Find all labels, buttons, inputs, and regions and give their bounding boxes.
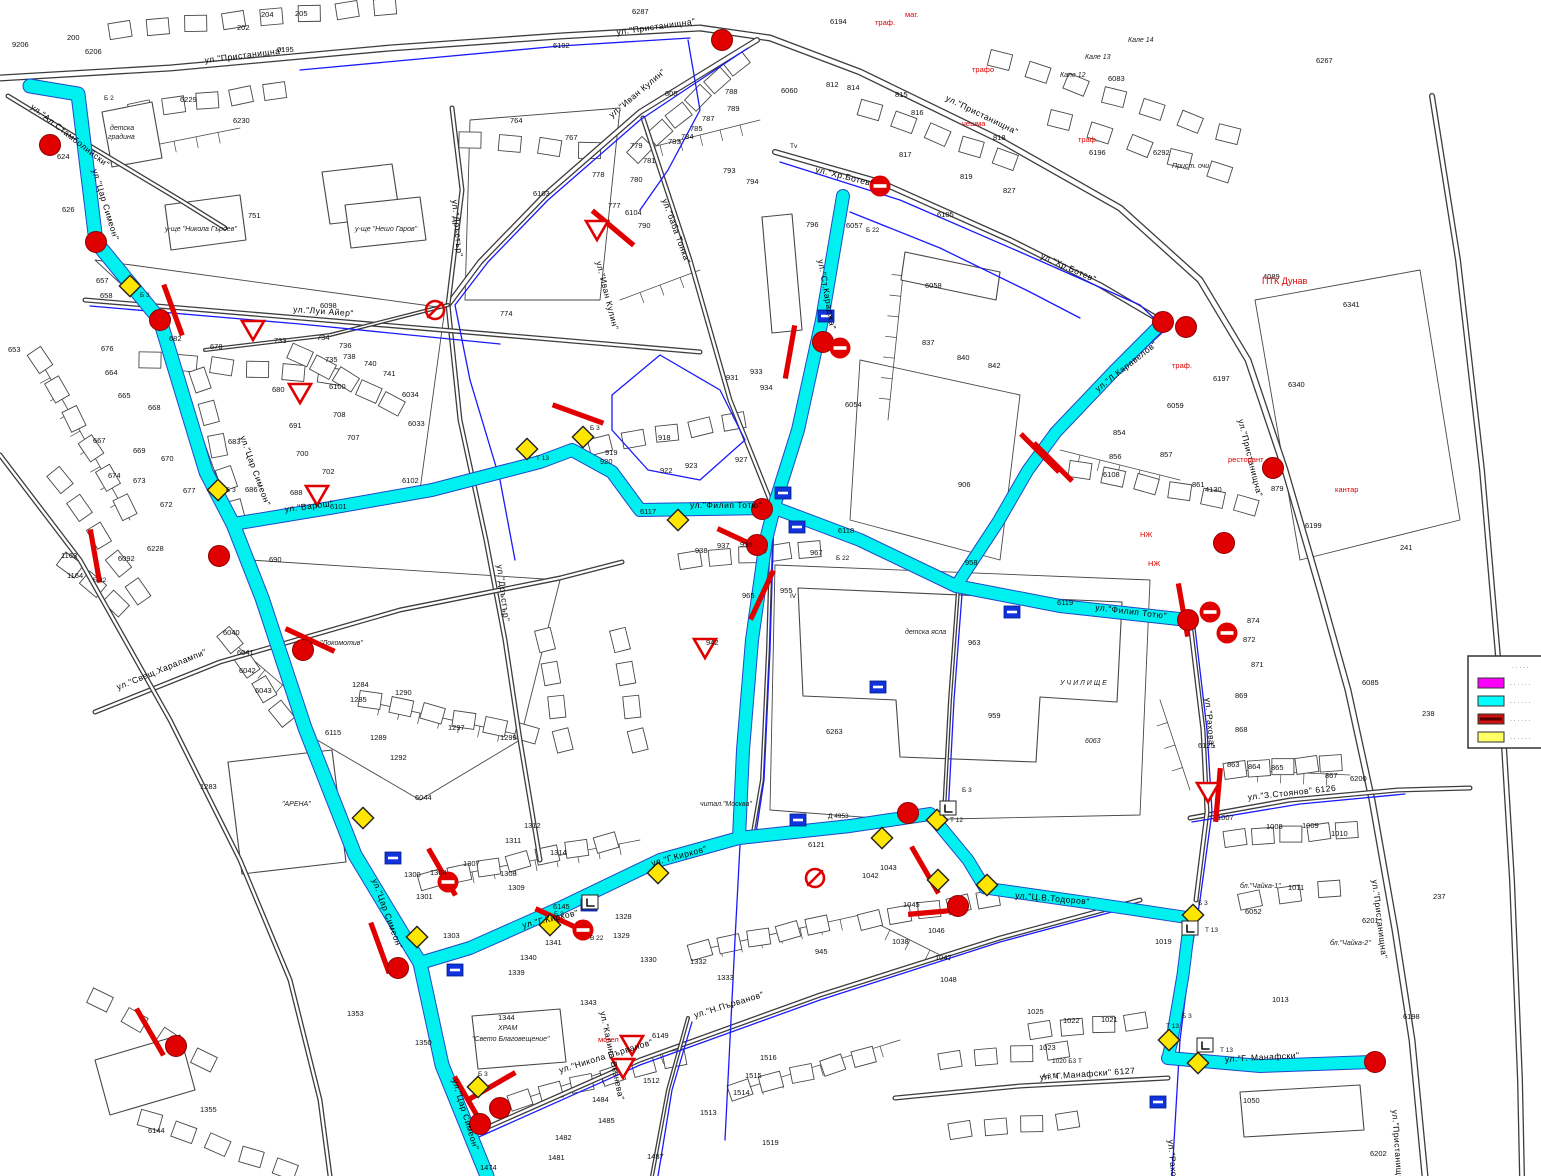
building-outline <box>1102 87 1127 108</box>
legend-swatch <box>1478 678 1504 688</box>
parcel-number: 857 <box>1160 450 1173 459</box>
building-outline <box>204 1133 231 1157</box>
parcel-division <box>196 137 198 148</box>
building-outline <box>139 352 161 368</box>
info-plate-sign <box>1197 1038 1213 1052</box>
sign-code-label: Т 13 <box>1205 927 1218 934</box>
parcel-number: 6083 <box>1108 74 1125 83</box>
parcel-number: 6085 <box>1362 678 1379 687</box>
sign-code-label: Б 3 <box>140 292 150 299</box>
parcel-number: 1010 <box>1331 829 1348 838</box>
parcel-division <box>619 844 621 855</box>
parcel-number: 6197 <box>1213 374 1230 383</box>
poi-label: Кале 14 <box>1128 37 1154 44</box>
parcel-number: 863 <box>1227 760 1240 769</box>
info-plate-sign <box>582 895 598 909</box>
legend-swatch <box>1478 696 1504 706</box>
building-outline <box>198 400 219 425</box>
building-outline <box>1234 495 1260 516</box>
parcel-number: 9206 <box>12 40 29 49</box>
sign-code-label: 1020 Б3 Т <box>1052 1058 1082 1065</box>
parcel-number: 816 <box>911 108 924 117</box>
building-outline <box>552 728 573 753</box>
hydrant-plate-bar <box>873 686 883 689</box>
sign-code-label: В 22 <box>590 935 604 942</box>
parcel-number: 6340 <box>1288 380 1305 389</box>
hydrant-marker <box>1178 610 1199 631</box>
building-outline <box>373 0 396 16</box>
building-outline <box>610 627 631 652</box>
building-outline <box>108 20 132 39</box>
building-outline <box>541 661 561 685</box>
parcel-number: 1038 <box>892 937 909 946</box>
legend-item-label: · · · · · · <box>1510 700 1530 706</box>
building-outline <box>789 1063 814 1083</box>
parcel-number: 958 <box>965 558 978 567</box>
parcel-number: 241 <box>1400 543 1413 552</box>
road-surface <box>470 900 1140 1135</box>
street-name-label: ул."Н.Първанов" <box>693 989 765 1020</box>
parcel-number: 959 <box>988 711 1001 720</box>
building-outline <box>239 1146 265 1167</box>
utility-poi-label: траф. <box>1078 135 1098 144</box>
parcel-division <box>888 316 899 317</box>
parcel-number: 6040 <box>223 628 240 637</box>
parcel-number: 658 <box>100 291 113 300</box>
parcel-division <box>883 357 894 358</box>
building-outline <box>805 915 830 935</box>
parcel-number: 1297 <box>448 723 465 732</box>
building-outline <box>857 910 882 931</box>
parcel-number: 6058 <box>925 281 942 290</box>
parcel-number: 6052 <box>1245 907 1262 916</box>
parcel-number: 1283 <box>200 782 217 791</box>
parcel-number: 1299 <box>500 733 517 742</box>
poi-label: бл."Чайка-2" <box>1330 939 1371 947</box>
parcel-number: 6192 <box>553 41 570 50</box>
hydrant-marker <box>150 310 171 331</box>
sign-code-label: Б 3 <box>226 487 236 494</box>
building-outline <box>1318 880 1341 897</box>
parcel-number: 942 <box>706 638 719 647</box>
building-outline <box>548 695 566 719</box>
parcel-number: 1330 <box>640 955 657 964</box>
building-outline <box>185 15 207 31</box>
parcel-number: 669 <box>133 446 146 455</box>
sign-code-label: Б 22 <box>93 577 107 584</box>
parcel-number: 667 <box>93 436 106 445</box>
parcel-number: 1021 <box>1101 1015 1118 1024</box>
valve-diamond-marker <box>467 1076 488 1097</box>
utility-poi-label: мотел <box>598 1035 619 1044</box>
parcel-number: 1308 <box>500 869 517 878</box>
parcel-number: 1008 <box>1266 822 1283 831</box>
parcel-number: 1042 <box>862 871 879 880</box>
parcel-number: 919 <box>605 448 618 457</box>
sign-code-label: Т 13 <box>1166 1023 1179 1030</box>
parcel-number: 702 <box>322 467 335 476</box>
street-name-label: ул."Дръстър" <box>450 199 465 257</box>
parcel-number: 6196 <box>1089 148 1106 157</box>
parcel-number: 934 <box>760 383 773 392</box>
sign-code-label: Д 4953 <box>828 813 849 820</box>
parcel-number: 1304 <box>430 868 447 877</box>
building-outline <box>924 123 951 147</box>
utility-poi-label: ПТК Дунав <box>1262 276 1307 286</box>
parcel-number: 936 <box>740 540 753 549</box>
building-large-outline <box>901 252 1000 300</box>
parcel-number: 1289 <box>370 733 387 742</box>
parcel-number: 6060 <box>781 86 798 95</box>
parcel-number: 6118 <box>838 526 854 535</box>
parcel-number: 237 <box>1433 892 1446 901</box>
parcel-number: 1355 <box>200 1105 217 1114</box>
building-outline <box>708 548 731 566</box>
parcel-number: 789 <box>727 104 740 113</box>
parcel-number: 1314 <box>550 848 567 857</box>
parcel-number: 6194 <box>830 17 847 26</box>
parcel-number: 937 <box>717 541 730 550</box>
parcel-number: 6043 <box>255 686 272 695</box>
building-outline <box>498 135 521 153</box>
parcel-number: 653 <box>8 345 21 354</box>
no-entry-bar <box>1221 631 1234 635</box>
parcel-number: 674 <box>108 471 121 480</box>
building-outline <box>1168 482 1192 501</box>
parcel-number: 6287 <box>632 7 649 16</box>
parcel-number: 707 <box>347 433 360 442</box>
hydrant-marker <box>209 546 230 567</box>
building-outline <box>938 1050 962 1069</box>
building-outline <box>621 429 645 449</box>
building-outline <box>623 695 641 719</box>
utility-poi-label: маг. <box>905 10 918 19</box>
building-outline <box>459 132 481 148</box>
parcel-number: 1341 <box>545 938 562 947</box>
parcel-number: 778 <box>592 170 605 179</box>
building-outline <box>1139 98 1165 120</box>
legend-item-label: · · · · · · <box>1510 736 1530 742</box>
poi-label: У Ч И Л И Щ Е <box>1059 680 1107 687</box>
parcel-number: 1519 <box>762 1138 779 1147</box>
parcel-division <box>275 685 282 693</box>
parcel-division <box>879 398 890 399</box>
parcel-number: 672 <box>160 500 173 509</box>
parcel-number: 922 <box>660 466 673 475</box>
parcel-number: 676 <box>101 344 114 353</box>
building-outline <box>1223 829 1247 848</box>
parcel-division <box>472 872 474 883</box>
building-outline <box>1021 1116 1043 1132</box>
parcel-number: 740 <box>364 359 377 368</box>
no-entry-bar <box>442 880 455 884</box>
parcel-number: 967 <box>810 548 823 557</box>
parcel-number: 673 <box>133 476 146 485</box>
poi-label: бл."Чайка-1" <box>1240 882 1281 890</box>
building-outline <box>959 136 985 157</box>
parcel-division <box>1172 768 1182 771</box>
parcel-number: 965 <box>742 591 755 600</box>
parcel-number: 6229 <box>180 95 197 104</box>
sign-code-label: Т 12 <box>950 817 963 824</box>
parcel-number: 664 <box>105 368 118 377</box>
utility-poi-label: чешма <box>962 119 986 128</box>
parcel-number: 945 <box>815 947 828 956</box>
valve-diamond-marker <box>352 807 373 828</box>
parcel-number: 931 <box>726 373 739 382</box>
info-plate-sign <box>1182 921 1198 935</box>
parcel-number: 6105 <box>937 210 954 219</box>
parcel-number: 869 <box>1235 691 1248 700</box>
parcel-number: 1353 <box>347 1009 364 1018</box>
sign-code-label: Б 22 <box>836 555 850 562</box>
parcel-number: 6263 <box>826 727 843 736</box>
parcel-number: 1019 <box>1155 937 1172 946</box>
parcel-number: 1007 <box>1217 813 1234 822</box>
poi-label: у-ще "Нешо Гаров" <box>354 226 418 233</box>
parcel-number: 1290 <box>395 688 412 697</box>
parcel-number: 1301 <box>416 892 433 901</box>
parcel-number: 1512 <box>643 1076 660 1085</box>
utility-poi-label: НЖ <box>1148 559 1160 568</box>
parcel-division <box>478 726 480 737</box>
parcel-division <box>535 860 537 871</box>
utility-poi-label: траф. <box>1172 361 1192 370</box>
parcel-number: 817 <box>899 150 912 159</box>
parcel-number: 6228 <box>147 544 164 553</box>
building-outline <box>263 82 287 101</box>
parcel-number: 6117 <box>640 507 656 516</box>
building-outline <box>196 92 219 109</box>
building-outline <box>272 1158 298 1176</box>
parcel-number: 1328 <box>615 912 632 921</box>
parcel-number: 624 <box>57 152 70 161</box>
poi-label: "Локомотив" <box>320 640 363 647</box>
building-outline <box>758 1071 783 1092</box>
parcel-number: 1343 <box>580 998 597 1007</box>
hydrant-marker <box>1263 458 1284 479</box>
parcel-number: 1307 <box>463 859 480 868</box>
parcel-number: 812 <box>826 80 839 89</box>
parcel-number: 827 <box>1003 186 1016 195</box>
parcel-number: 1516 <box>760 1053 777 1062</box>
parcel-number: 690 <box>269 555 282 564</box>
sign-code-label: Тv <box>790 143 798 150</box>
parcel-division <box>660 145 663 156</box>
parcel-number: 1312 <box>524 821 541 830</box>
building-outline <box>1177 110 1203 133</box>
parcel-division <box>886 336 897 337</box>
sign-code-label: Т 13 <box>536 455 549 462</box>
parcel-number: 1292 <box>390 753 407 762</box>
parcel-number: 736 <box>339 341 352 350</box>
parcel-number: 700 <box>296 449 309 458</box>
parcel-number: 1515 <box>745 1071 762 1080</box>
parcel-number: 780 <box>630 175 643 184</box>
parcel-division <box>1157 723 1167 726</box>
building-outline <box>477 858 501 877</box>
building-outline <box>208 433 228 458</box>
parcel-number: 678 <box>210 342 223 351</box>
parcel-number: 1025 <box>1027 1007 1044 1016</box>
building-outline <box>1055 1111 1079 1130</box>
building-outline <box>125 578 151 605</box>
parcel-number: 6092 <box>118 554 135 563</box>
map-canvas: 9206200202204205620661956192622962307516… <box>0 0 1541 1176</box>
parcel-number: 1048 <box>940 975 957 984</box>
utility-poi-label: траф. <box>875 18 895 27</box>
parcel-number: 238 <box>1422 709 1435 718</box>
street-name-label: ул."Филип Тотю" <box>690 500 762 510</box>
parcel-number: 865 <box>1271 763 1284 772</box>
building-outline <box>565 839 589 858</box>
no-entry-bar <box>874 184 887 188</box>
parcel-number: 677 <box>183 486 196 495</box>
building-outline <box>1047 110 1072 131</box>
parcel-number: 814 <box>847 83 860 92</box>
parcel-division <box>840 919 842 930</box>
parcel-number: 933 <box>750 367 763 376</box>
parcel-number: 6230 <box>233 116 250 125</box>
parcel-division <box>218 132 220 143</box>
parcel-number: 1023 <box>1039 1043 1056 1052</box>
parcel-number: 6149 <box>652 1031 669 1040</box>
parcel-number: 682 <box>169 334 182 343</box>
parcel-number: 6206 <box>85 47 102 56</box>
parcel-number: 923 <box>685 461 698 470</box>
parcel-number: 842 <box>988 361 1001 370</box>
parcel-division <box>720 130 723 141</box>
building-outline <box>282 364 305 382</box>
building-outline <box>191 1048 218 1072</box>
parcel-number: 1350 <box>415 1038 432 1047</box>
parcel-number: 867 <box>1325 771 1338 780</box>
poi-label: Кале 12 <box>1060 72 1086 79</box>
parcel-number: 1513 <box>700 1108 717 1117</box>
building-outline <box>210 357 234 376</box>
parcel-number: 963 <box>968 638 981 647</box>
valve-diamond-marker <box>927 869 948 890</box>
sign-code-label: Б 2 <box>104 95 114 102</box>
parcel-number: 6044 <box>415 793 432 802</box>
parcel-number: 738 <box>343 352 356 361</box>
parcel-number: 6267 <box>1316 56 1333 65</box>
parcel-number: 1339 <box>508 968 525 977</box>
parcel-number: 6121 <box>808 840 825 849</box>
parcel-number: 1344 <box>498 1013 515 1022</box>
building-outline <box>820 1054 846 1076</box>
parcel-number: 6199 <box>1305 521 1322 530</box>
info-plate-sign <box>940 801 956 815</box>
building-outline <box>287 343 314 367</box>
building-outline <box>1207 161 1233 183</box>
parcel-division <box>680 278 684 288</box>
parcel-number: 764 <box>510 116 523 125</box>
building-outline <box>1025 61 1051 83</box>
no-entry-bar <box>834 346 847 350</box>
parcel-number: 6115 <box>325 728 341 737</box>
parcel-number: 1340 <box>520 953 537 962</box>
hydrant-marker <box>712 30 733 51</box>
building-outline <box>717 934 742 954</box>
parcel-number: 6034 <box>402 390 419 399</box>
building-outline <box>113 494 137 521</box>
parcel-number: 6198 <box>1403 1012 1420 1021</box>
closure-bar-marker <box>552 402 605 425</box>
building-outline <box>1216 124 1241 145</box>
parcel-number: 1514 <box>733 1088 750 1097</box>
building-outline <box>229 86 254 106</box>
yield-triangle-sign <box>586 221 608 240</box>
parcel-number: 6057 <box>846 221 863 230</box>
parcel-number: 874 <box>1247 616 1260 625</box>
parcel-number: 6100 <box>329 382 346 391</box>
parcel-number: 784 <box>681 132 694 141</box>
hydrant-marker <box>490 1098 511 1119</box>
building-large-outline <box>165 195 246 250</box>
building-outline <box>1295 756 1319 775</box>
building-outline <box>1011 1046 1033 1062</box>
utility-poi-label: кантар <box>1335 485 1358 494</box>
building-outline <box>747 928 771 947</box>
parcel-number: 815 <box>895 90 908 99</box>
parcel-number: 751 <box>248 211 261 220</box>
hydrant-marker <box>1214 533 1235 554</box>
building-outline <box>535 627 556 652</box>
parcel-number: 657 <box>96 276 109 285</box>
parcel-number: 1163 <box>61 551 77 560</box>
water-line <box>975 330 1165 560</box>
parcel-number: 6041 <box>237 648 254 657</box>
no-entry-bar <box>577 928 590 932</box>
parcel-number: 668 <box>148 403 161 412</box>
parcel-division <box>1165 745 1175 748</box>
road-surface <box>895 1078 1168 1098</box>
parcel-number: 1309 <box>508 883 525 892</box>
parcel-division <box>885 930 890 940</box>
street-name-label: ул."Рахова" <box>1166 1139 1180 1176</box>
closure-bar-marker <box>783 325 797 379</box>
parcel-number: 1474 <box>480 1163 497 1172</box>
street-name-label: ул."Хр.Ботев" <box>1039 251 1098 284</box>
hydrant-plate-bar <box>1007 611 1017 614</box>
building-outline <box>851 1046 876 1067</box>
road-casing <box>1432 96 1522 1176</box>
building-outline <box>189 367 211 393</box>
city-utility-map: 9206200202204205620661956192622962307516… <box>0 0 1541 1176</box>
parcel-number: 1022 <box>1063 1016 1080 1025</box>
parcel-number: 1285 <box>350 695 367 704</box>
hydrant-marker <box>948 896 969 917</box>
street-name-label: ул."баба Тонка" <box>660 197 693 265</box>
building-outline <box>593 832 619 853</box>
hydrant-plate-bar <box>388 857 398 860</box>
poi-label: читал."Москва" <box>700 801 752 808</box>
parcel-number: 6200 <box>1350 774 1367 783</box>
parcel-number: 1311 <box>505 836 521 845</box>
parcel-number: 796 <box>806 220 819 229</box>
building-outline <box>146 18 169 36</box>
sign-code-label: Б 3 <box>962 787 972 794</box>
parcel-number: 6341 <box>1343 300 1360 309</box>
parcel-number: 6033 <box>408 419 425 428</box>
legend-item-label: · · · · · · <box>1510 682 1530 688</box>
poi-label: ХРАМ <box>497 1025 517 1032</box>
parcel-number: 837 <box>922 338 935 347</box>
parcel-number: 872 <box>1243 635 1256 644</box>
hydrant-marker <box>1365 1052 1386 1073</box>
building-outline <box>974 1048 997 1066</box>
